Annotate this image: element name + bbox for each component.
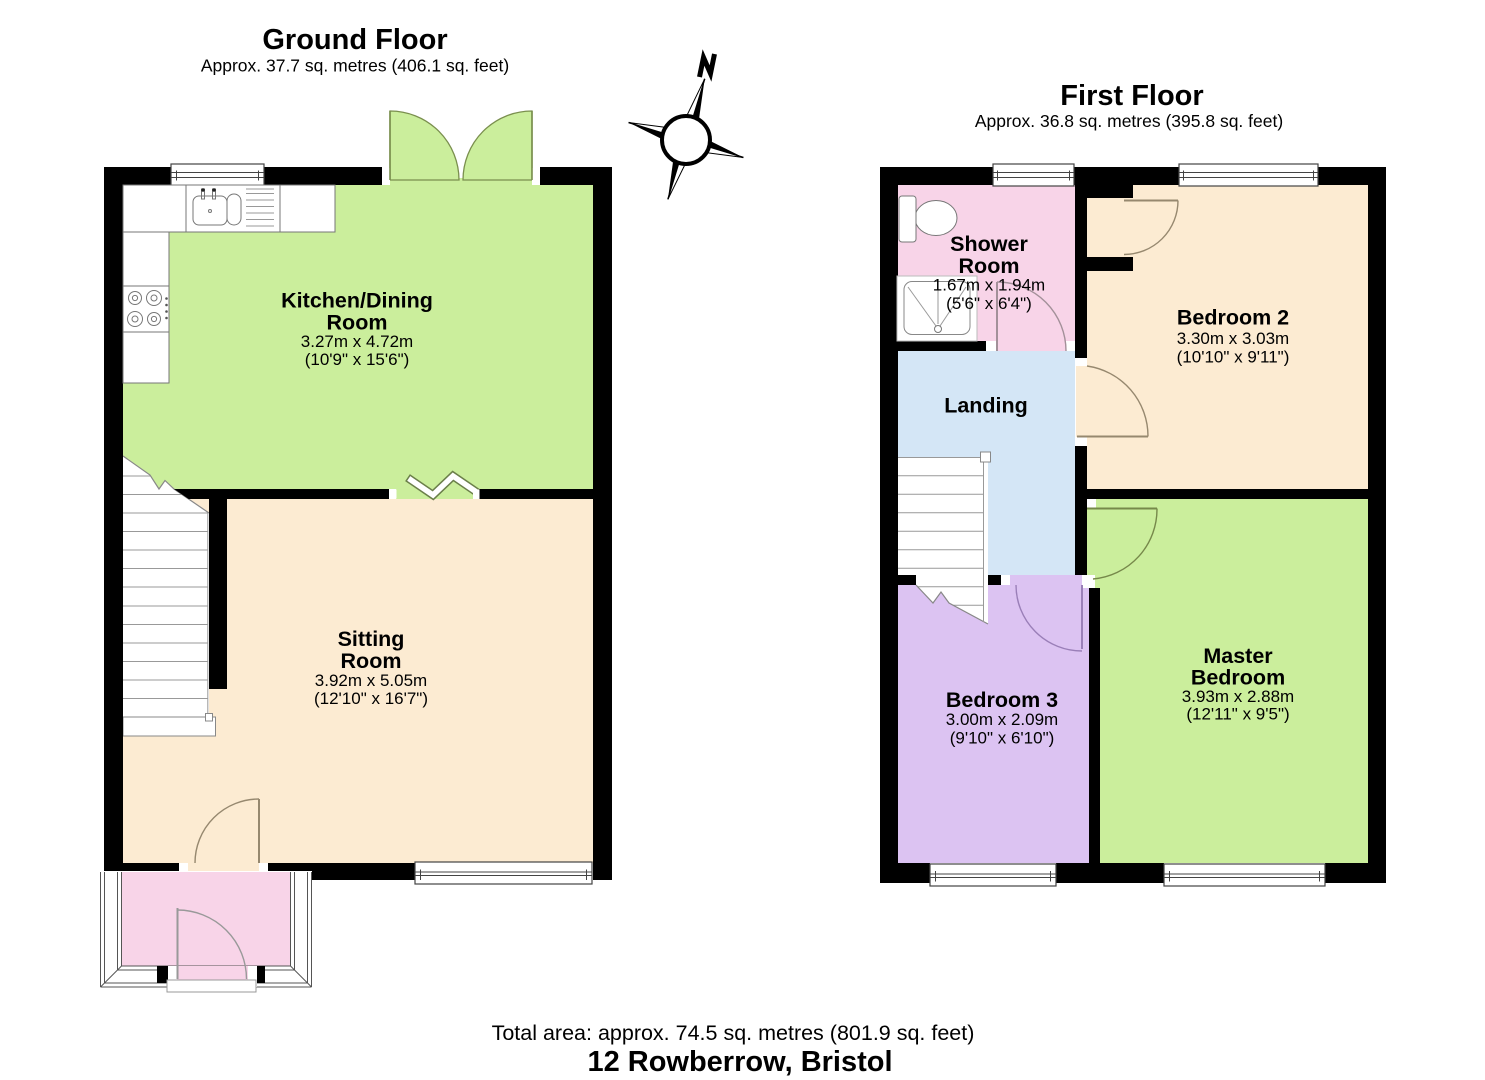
svg-text:12 Rowberrow, Bristol: 12 Rowberrow, Bristol [587,1046,892,1078]
svg-text:Sitting: Sitting [338,627,405,651]
svg-text:First Floor: First Floor [1060,80,1203,112]
svg-text:Ground Floor: Ground Floor [262,24,447,56]
svg-text:Shower: Shower [950,232,1028,256]
svg-text:3.30m x 3.03m: 3.30m x 3.03m [1177,329,1289,348]
svg-text:3.27m x 4.72m: 3.27m x 4.72m [301,332,413,351]
svg-text:3.92m x 5.05m: 3.92m x 5.05m [315,671,427,690]
svg-text:Room: Room [959,254,1020,278]
svg-text:Kitchen/Dining: Kitchen/Dining [281,289,433,313]
svg-text:Bedroom 2: Bedroom 2 [1177,306,1289,330]
svg-text:Room: Room [341,649,402,673]
svg-text:Total area: approx. 74.5 sq. m: Total area: approx. 74.5 sq. metres (801… [492,1021,975,1045]
svg-text:Bedroom 3: Bedroom 3 [946,688,1058,712]
svg-text:3.00m x 2.09m: 3.00m x 2.09m [946,710,1058,729]
svg-text:(10'9" x 15'6"): (10'9" x 15'6") [305,350,410,369]
svg-text:Bedroom: Bedroom [1191,666,1285,690]
svg-text:3.93m x 2.88m: 3.93m x 2.88m [1182,687,1294,706]
svg-text:Room: Room [327,311,388,335]
svg-text:(9'10" x 6'10"): (9'10" x 6'10") [950,729,1055,748]
svg-text:Landing: Landing [944,394,1028,418]
svg-text:1.67m x 1.94m: 1.67m x 1.94m [933,276,1045,295]
svg-text:(5'6" x 6'4"): (5'6" x 6'4") [946,294,1032,313]
svg-text:Master: Master [1203,644,1273,668]
svg-text:Approx. 36.8 sq. metres (395.8: Approx. 36.8 sq. metres (395.8 sq. feet) [975,111,1283,131]
svg-text:Approx. 37.7 sq. metres (406.1: Approx. 37.7 sq. metres (406.1 sq. feet) [201,56,509,76]
svg-text:(10'10" x 9'11"): (10'10" x 9'11") [1177,348,1290,367]
svg-text:(12'11" x 9'5"): (12'11" x 9'5") [1186,705,1289,724]
svg-text:(12'10" x 16'7"): (12'10" x 16'7") [314,689,428,708]
